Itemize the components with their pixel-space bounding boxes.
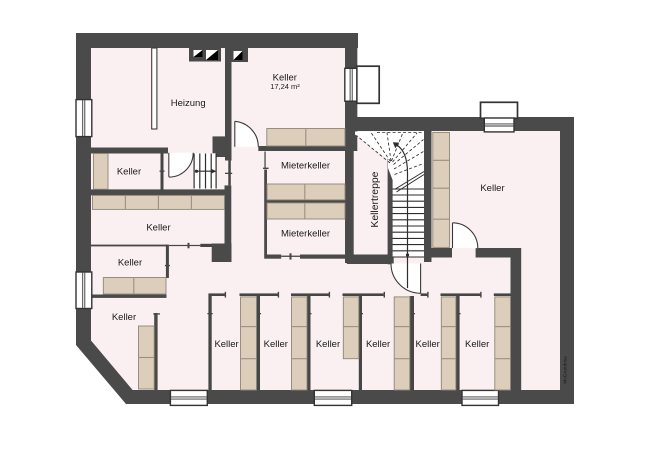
svg-text:Keller: Keller	[118, 257, 142, 268]
svg-text:Keller: Keller	[465, 339, 489, 350]
svg-text:Mieterkeller: Mieterkeller	[281, 229, 330, 240]
svg-text:Keller: Keller	[316, 339, 340, 350]
svg-text:Heizung: Heizung	[171, 98, 206, 109]
svg-text:Keller: Keller	[480, 183, 504, 194]
svg-text:Keller: Keller	[146, 222, 170, 233]
svg-text:Keller: Keller	[264, 339, 288, 350]
svg-text:Mieterkeller: Mieterkeller	[281, 160, 330, 171]
svg-text:Keller: Keller	[366, 339, 390, 350]
svg-text:Keller: Keller	[214, 339, 238, 350]
svg-text:Keller: Keller	[117, 167, 141, 178]
svg-text:Keller: Keller	[416, 339, 440, 350]
svg-text:Keller: Keller	[112, 312, 136, 323]
svg-text:McGrundriss: McGrundriss	[563, 356, 569, 384]
svg-text:Kellertreppe: Kellertreppe	[370, 171, 381, 227]
svg-text:17,24 m²: 17,24 m²	[270, 82, 300, 91]
